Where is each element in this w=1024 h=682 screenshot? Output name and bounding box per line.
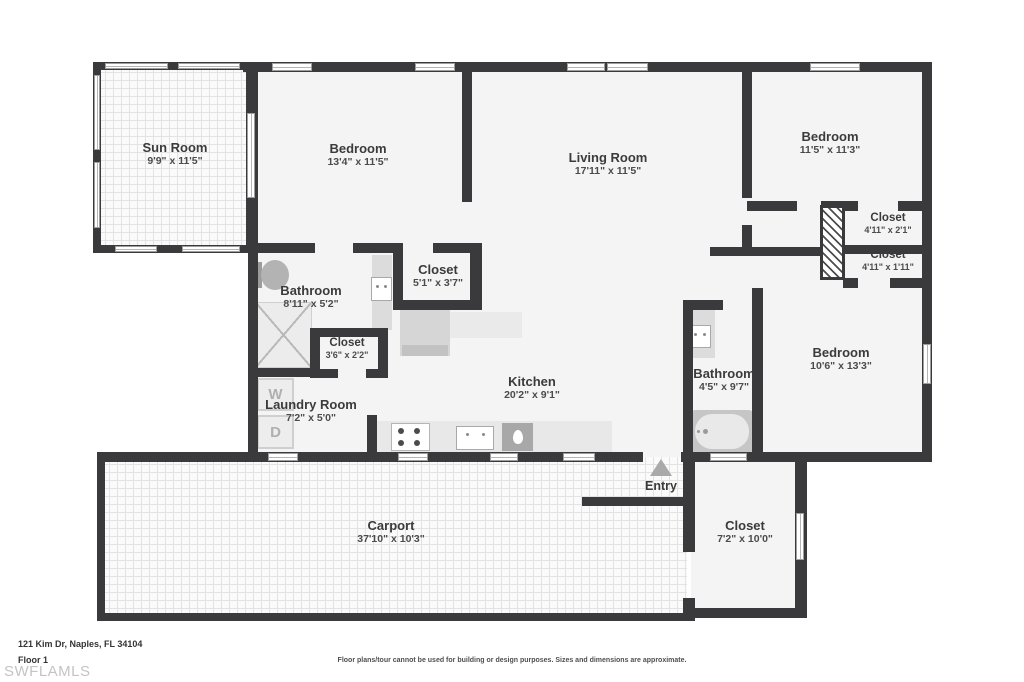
room-label-closet-e: Closet 7'2" x 10'0" — [717, 518, 773, 546]
window — [94, 162, 100, 228]
room-dims: 13'4" x 11'5" — [327, 156, 388, 169]
room-name: Closet — [862, 249, 914, 262]
stove-icon — [391, 423, 430, 451]
room-label-bedroom-2: Bedroom 11'5" x 11'3" — [800, 129, 861, 157]
room-name: Closet — [864, 212, 911, 225]
window — [182, 246, 240, 252]
wall — [310, 328, 388, 337]
entry-arrow-icon — [650, 459, 672, 476]
window — [115, 246, 157, 252]
wall — [898, 201, 932, 211]
faucet-dot — [384, 285, 387, 288]
address-text: 121 Kim Dr, Naples, FL 34104 — [18, 639, 142, 649]
wall — [683, 300, 723, 310]
window — [247, 113, 255, 198]
wall — [310, 369, 338, 378]
room-dims: 4'11" x 1'11" — [862, 262, 914, 273]
wall — [582, 497, 683, 506]
room-name: Bedroom — [800, 129, 861, 144]
wall — [890, 278, 932, 288]
wall — [248, 368, 312, 377]
room-name: Closet — [717, 518, 773, 533]
room-label-closet-c: Closet 5'1" x 3'7" — [413, 262, 463, 290]
disclaimer-text: Floor plans/tour cannot be used for buil… — [338, 657, 687, 664]
window — [810, 63, 860, 71]
window — [923, 344, 931, 384]
room-dims: 20'2" x 9'1" — [504, 389, 560, 402]
wall — [97, 613, 695, 621]
room-label-bedroom-1: Bedroom 13'4" x 11'5" — [327, 141, 388, 169]
room-label-bathroom-2: Bathroom 4'5" x 9'7" — [693, 366, 754, 394]
room-name: Closet — [413, 262, 463, 277]
room-dims: 4'11" x 2'1" — [864, 225, 911, 236]
wall — [742, 62, 752, 198]
room-label-living-room: Living Room 17'11" x 11'5" — [569, 150, 648, 178]
room-name: Living Room — [569, 150, 648, 165]
drain-dot — [703, 429, 708, 434]
window — [796, 513, 804, 560]
room-dims: 7'2" x 5'0" — [265, 412, 357, 425]
window — [710, 453, 747, 461]
room-name: Bathroom — [280, 283, 341, 298]
wall — [250, 243, 315, 253]
room-name: Entry — [645, 479, 677, 494]
room-name: Closet — [326, 337, 369, 350]
room-name: Carport — [357, 518, 425, 533]
window — [272, 63, 312, 71]
kitchen-counter-upper-edge — [402, 345, 448, 356]
room-dims: 5'1" x 3'7" — [413, 277, 463, 290]
dishwasher-handle — [513, 430, 523, 444]
room-dims: 4'5" x 9'7" — [693, 381, 754, 394]
faucet-dot — [703, 333, 706, 336]
wall — [683, 608, 807, 618]
room-dims: 3'6" x 2'2" — [326, 350, 369, 361]
kitchen-backsplash — [450, 312, 522, 338]
wall — [922, 62, 932, 462]
wall — [353, 243, 395, 253]
burner-dot — [414, 440, 420, 446]
shower-icon — [255, 302, 312, 368]
room-name: Sun Room — [143, 140, 208, 155]
room-dims: 8'11" x 5'2" — [280, 298, 341, 311]
wall — [367, 415, 377, 462]
watermark-logo: SWFLAMLS — [4, 663, 91, 680]
room-label-sun-room: Sun Room 9'9" x 11'5" — [143, 140, 208, 168]
wall — [366, 369, 388, 378]
bathroom1-sink-icon — [371, 277, 392, 301]
room-name: Laundry Room — [265, 397, 357, 412]
wall — [248, 248, 258, 462]
burner-dot — [414, 428, 420, 434]
room-label-closet-a: Closet 4'11" x 2'1" — [864, 212, 911, 236]
wall — [97, 453, 105, 621]
room-dims: 7'2" x 10'0" — [717, 533, 773, 546]
room-label-bedroom-3: Bedroom 10'6" x 13'3" — [810, 345, 872, 373]
wall — [843, 278, 858, 288]
wall — [462, 62, 472, 202]
room-dims: 17'11" x 11'5" — [569, 165, 648, 178]
room-dims: 9'9" x 11'5" — [143, 155, 208, 168]
window — [105, 63, 168, 69]
room-dims: 10'6" x 13'3" — [810, 360, 872, 373]
window — [94, 75, 100, 150]
drain-dot — [697, 430, 700, 433]
window — [563, 453, 595, 461]
room-label-laundry: Laundry Room 7'2" x 5'0" — [265, 397, 357, 425]
room-label-closet-d: Closet 3'6" x 2'2" — [326, 337, 369, 361]
hatched-wall — [820, 205, 845, 280]
window — [268, 453, 298, 461]
wall — [393, 300, 482, 310]
room-name: Bathroom — [693, 366, 754, 381]
wall — [97, 452, 248, 462]
dryer-letter: D — [270, 424, 281, 441]
window — [178, 63, 240, 69]
burner-dot — [398, 440, 404, 446]
floor-plan: W D — [0, 0, 1024, 682]
faucet-dot — [466, 433, 469, 436]
wall — [710, 247, 823, 256]
window — [490, 453, 518, 461]
faucet-dot — [694, 333, 697, 336]
faucet-dot — [376, 285, 379, 288]
room-label-entry: Entry — [645, 479, 677, 494]
faucet-dot — [482, 433, 485, 436]
window — [567, 63, 605, 71]
room-label-closet-b: Closet 4'11" x 1'11" — [862, 249, 914, 273]
room-label-bathroom-1: Bathroom 8'11" x 5'2" — [280, 283, 341, 311]
room-label-kitchen: Kitchen 20'2" x 9'1" — [504, 374, 560, 402]
window — [398, 453, 428, 461]
room-dims: 37'10" x 10'3" — [357, 533, 425, 546]
room-name: Bedroom — [810, 345, 872, 360]
window — [607, 63, 648, 71]
window — [415, 63, 455, 71]
room-name: Kitchen — [504, 374, 560, 389]
room-name: Bedroom — [327, 141, 388, 156]
room-label-carport: Carport 37'10" x 10'3" — [357, 518, 425, 546]
wall — [683, 300, 693, 462]
burner-dot — [398, 428, 404, 434]
room-dims: 11'5" x 11'3" — [800, 144, 861, 157]
wall — [747, 201, 797, 211]
wall — [683, 458, 695, 552]
kitchen-sink-icon — [456, 426, 494, 450]
